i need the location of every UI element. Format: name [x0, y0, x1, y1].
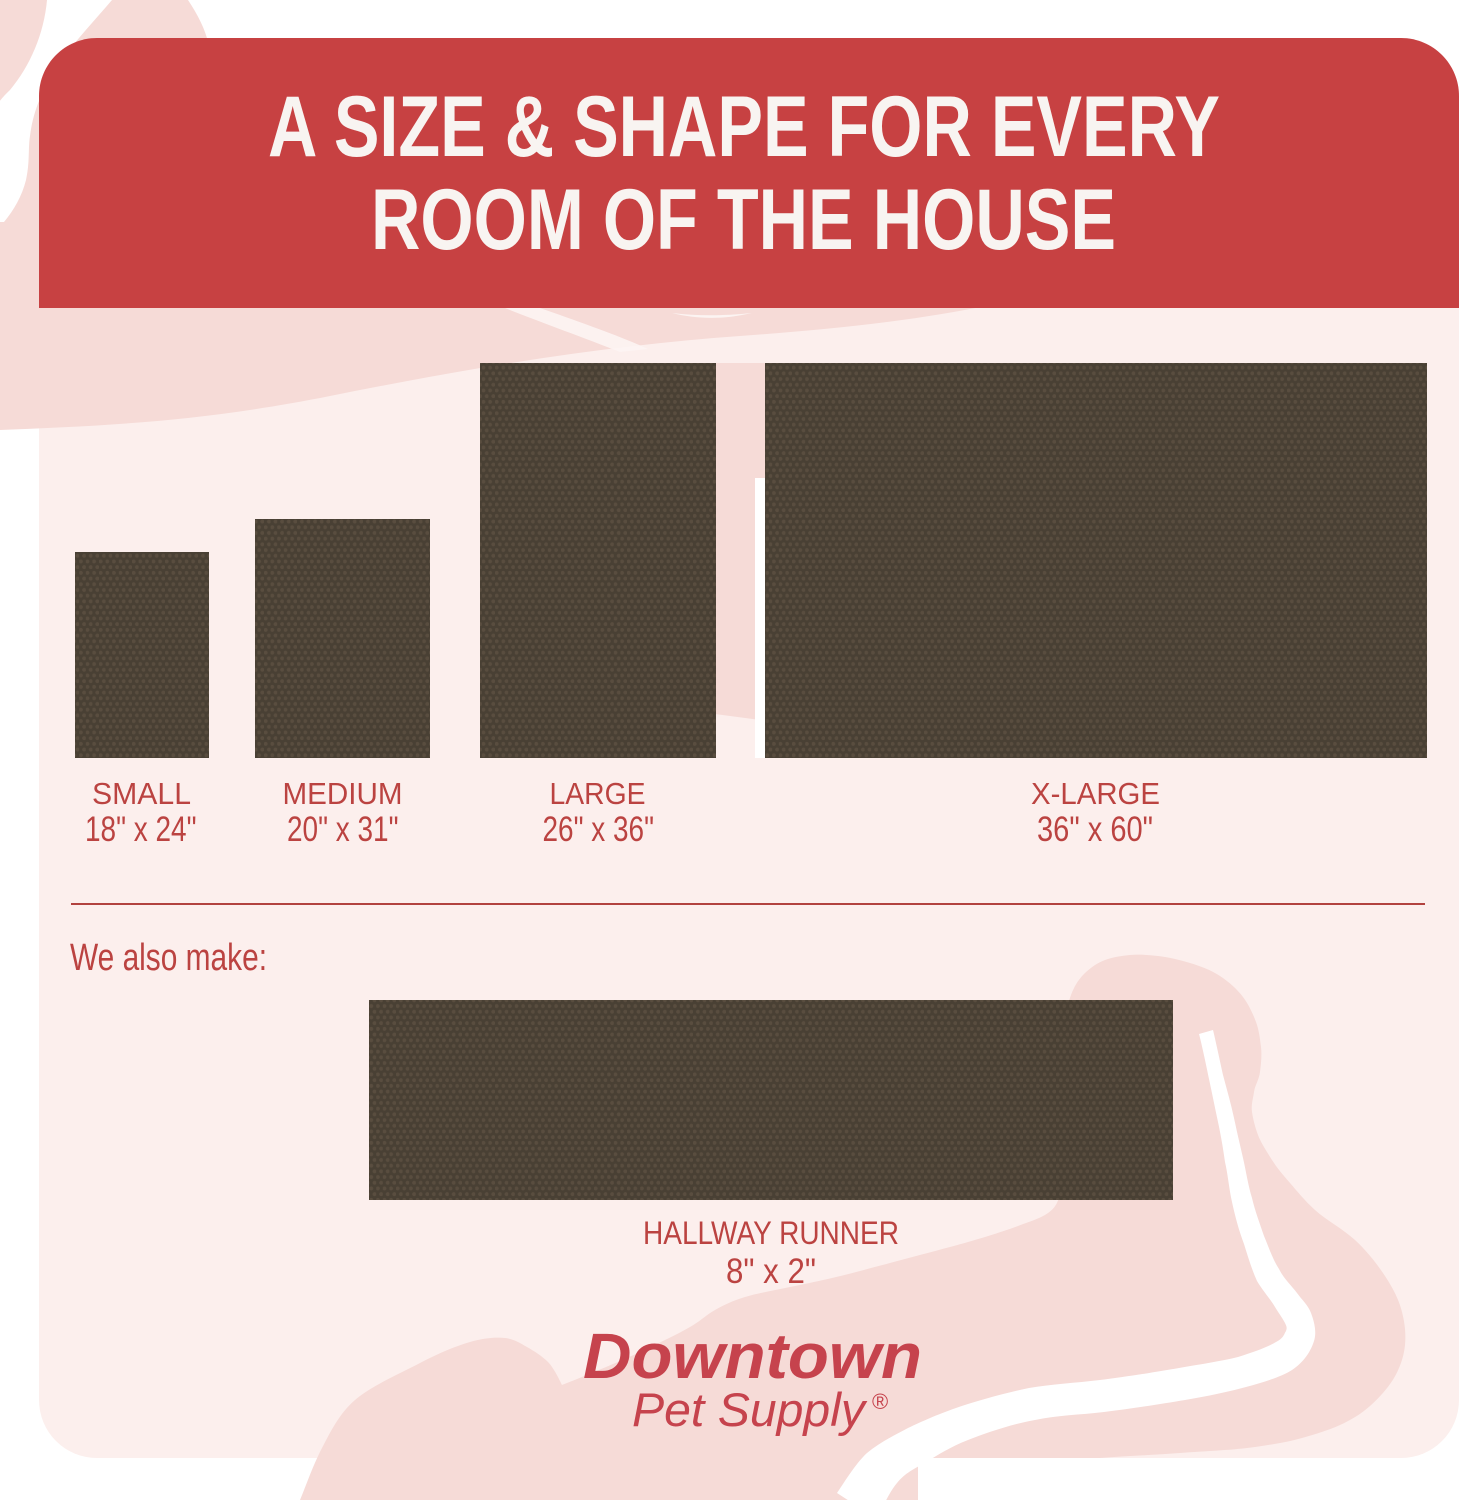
svg-text:Downtown: Downtown — [583, 1320, 922, 1392]
svg-text:LARGE: LARGE — [550, 777, 646, 811]
svg-text:36" x 60": 36" x 60" — [1037, 810, 1153, 849]
svg-text:We also make:: We also make: — [70, 937, 267, 979]
svg-text:26" x 36": 26" x 36" — [543, 810, 655, 849]
svg-text:20" x 31": 20" x 31" — [287, 810, 399, 849]
svg-text:MEDIUM: MEDIUM — [283, 777, 403, 811]
svg-text:A SIZE & SHAPE FOR EVERY: A SIZE & SHAPE FOR EVERY — [268, 79, 1220, 175]
svg-text:Pet Supply: Pet Supply — [632, 1383, 868, 1436]
svg-text:SMALL: SMALL — [92, 777, 191, 811]
svg-text:HALLWAY RUNNER: HALLWAY RUNNER — [643, 1215, 899, 1251]
svg-text:X-LARGE: X-LARGE — [1031, 777, 1160, 811]
svg-text:®: ® — [872, 1389, 888, 1414]
svg-text:8" x 2": 8" x 2" — [726, 1252, 816, 1291]
svg-text:ROOM OF THE HOUSE: ROOM OF THE HOUSE — [371, 172, 1116, 268]
svg-text:18" x 24": 18" x 24" — [85, 810, 197, 849]
